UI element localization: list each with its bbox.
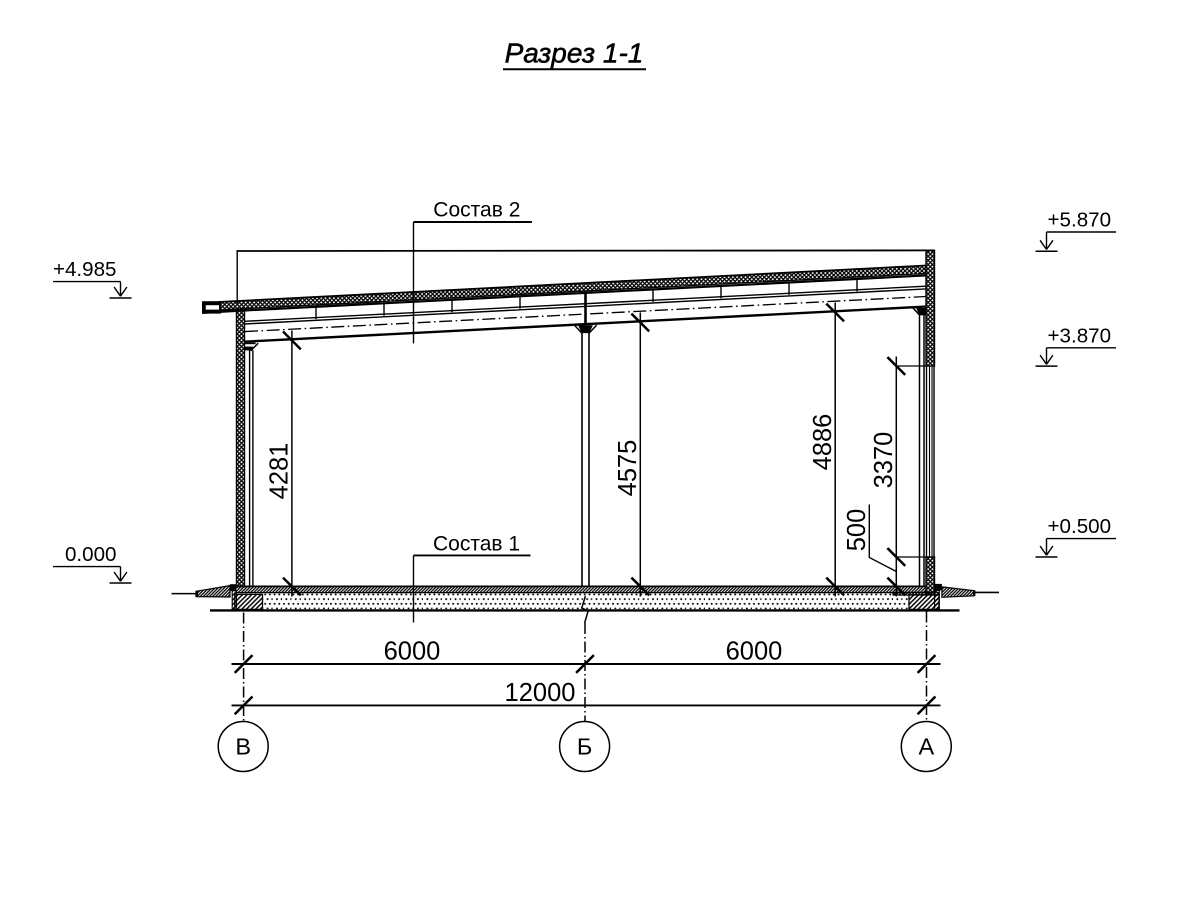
- svg-text:4281: 4281: [266, 443, 294, 500]
- svg-text:Состав 2: Состав 2: [433, 199, 520, 222]
- svg-text:3370: 3370: [870, 432, 898, 489]
- svg-text:Разрез 1-1: Разрез 1-1: [505, 38, 644, 69]
- svg-text:В: В: [235, 734, 251, 760]
- svg-text:+5.870: +5.870: [1048, 209, 1112, 232]
- svg-text:+0.500: +0.500: [1048, 515, 1112, 538]
- svg-text:6000: 6000: [726, 638, 783, 666]
- svg-text:+3.870: +3.870: [1048, 324, 1112, 347]
- svg-text:А: А: [918, 734, 934, 760]
- svg-text:4886: 4886: [809, 414, 837, 471]
- svg-text:0.000: 0.000: [65, 543, 117, 566]
- svg-text:+4.985: +4.985: [53, 258, 117, 281]
- svg-text:Состав 1: Состав 1: [433, 533, 520, 556]
- svg-text:12000: 12000: [505, 679, 576, 707]
- svg-text:Б: Б: [577, 734, 592, 760]
- svg-text:6000: 6000: [384, 638, 441, 666]
- svg-text:4575: 4575: [614, 440, 642, 497]
- svg-text:500: 500: [843, 509, 871, 552]
